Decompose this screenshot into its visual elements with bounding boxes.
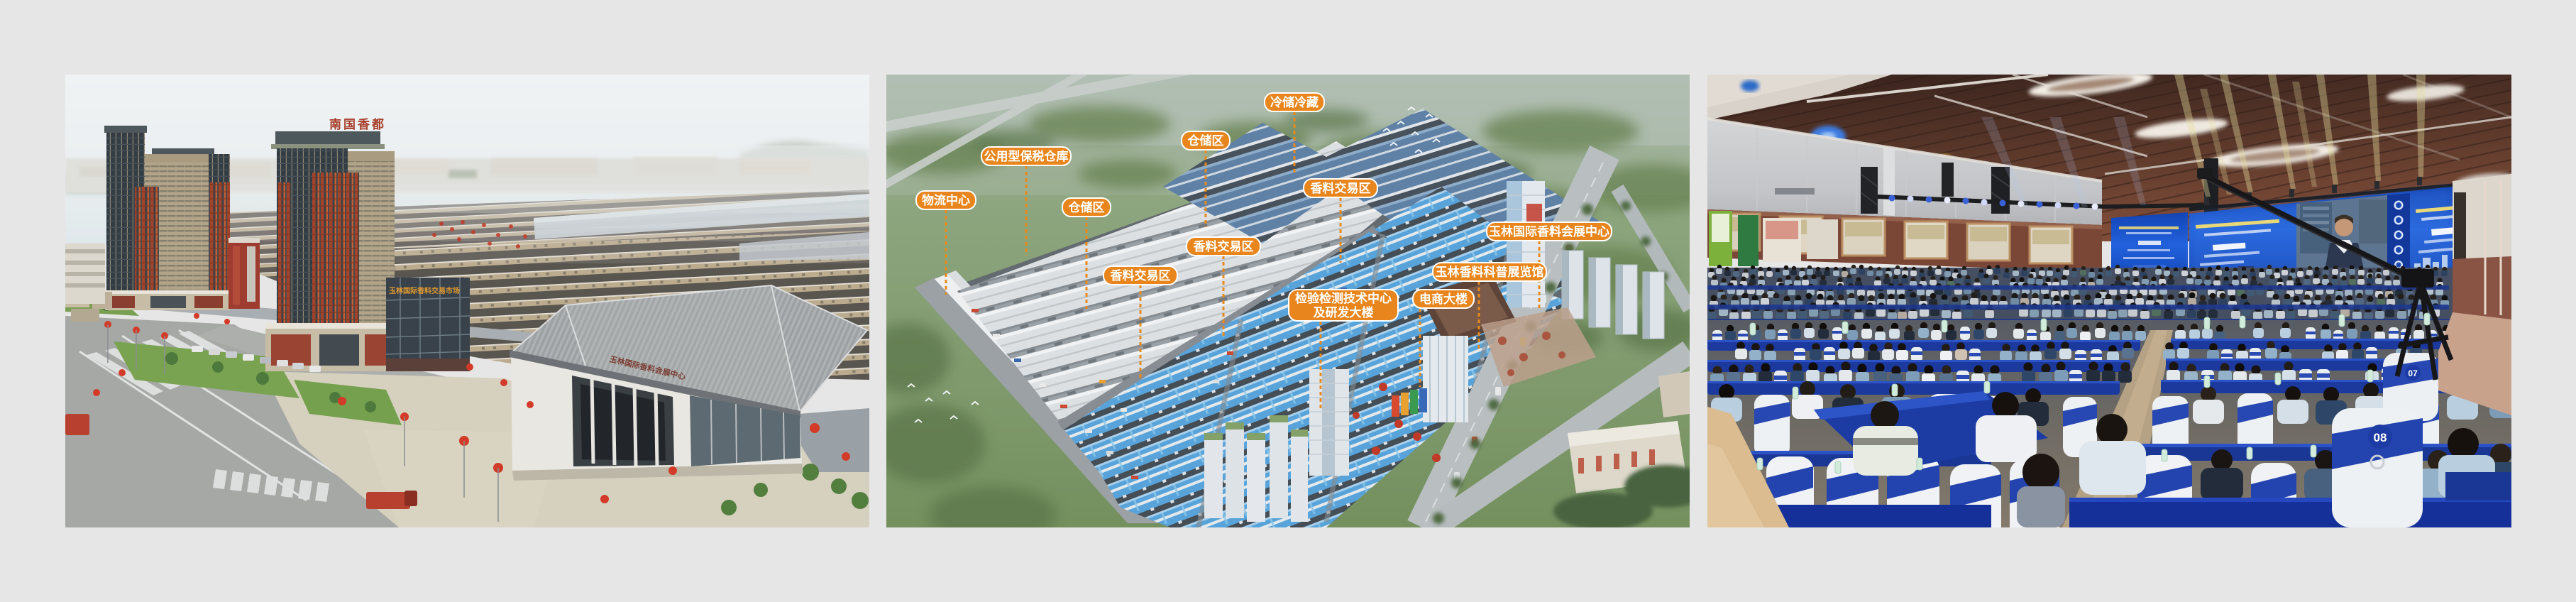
svg-text:物流中心: 物流中心 — [922, 193, 970, 207]
svg-text:08: 08 — [2374, 431, 2387, 444]
svg-text:冷储冷藏: 冷储冷藏 — [1270, 95, 1319, 109]
svg-text:07: 07 — [2408, 368, 2418, 378]
svg-text:仓储区: 仓储区 — [1187, 133, 1224, 148]
svg-text:香料交易区: 香料交易区 — [1111, 268, 1171, 283]
svg-text:香料交易区: 香料交易区 — [1311, 181, 1371, 195]
svg-text:玉林香料科普展览馆: 玉林香料科普展览馆 — [1436, 265, 1544, 279]
svg-text:玉林国际香料会展中心: 玉林国际香料会展中心 — [1489, 224, 1609, 239]
svg-text:南国香都: 南国香都 — [329, 117, 386, 131]
svg-text:玉林国际香料交易市场: 玉林国际香料交易市场 — [389, 286, 460, 295]
svg-text:电商大楼: 电商大楼 — [1419, 292, 1468, 306]
svg-text:香料交易区: 香料交易区 — [1194, 239, 1254, 253]
svg-text:公用型保税仓库: 公用型保税仓库 — [984, 149, 1069, 163]
svg-text:检验检测技术中心: 检验检测技术中心 — [1295, 291, 1392, 305]
svg-text:及研发大楼: 及研发大楼 — [1314, 305, 1374, 319]
svg-text:仓储区: 仓储区 — [1068, 200, 1105, 214]
